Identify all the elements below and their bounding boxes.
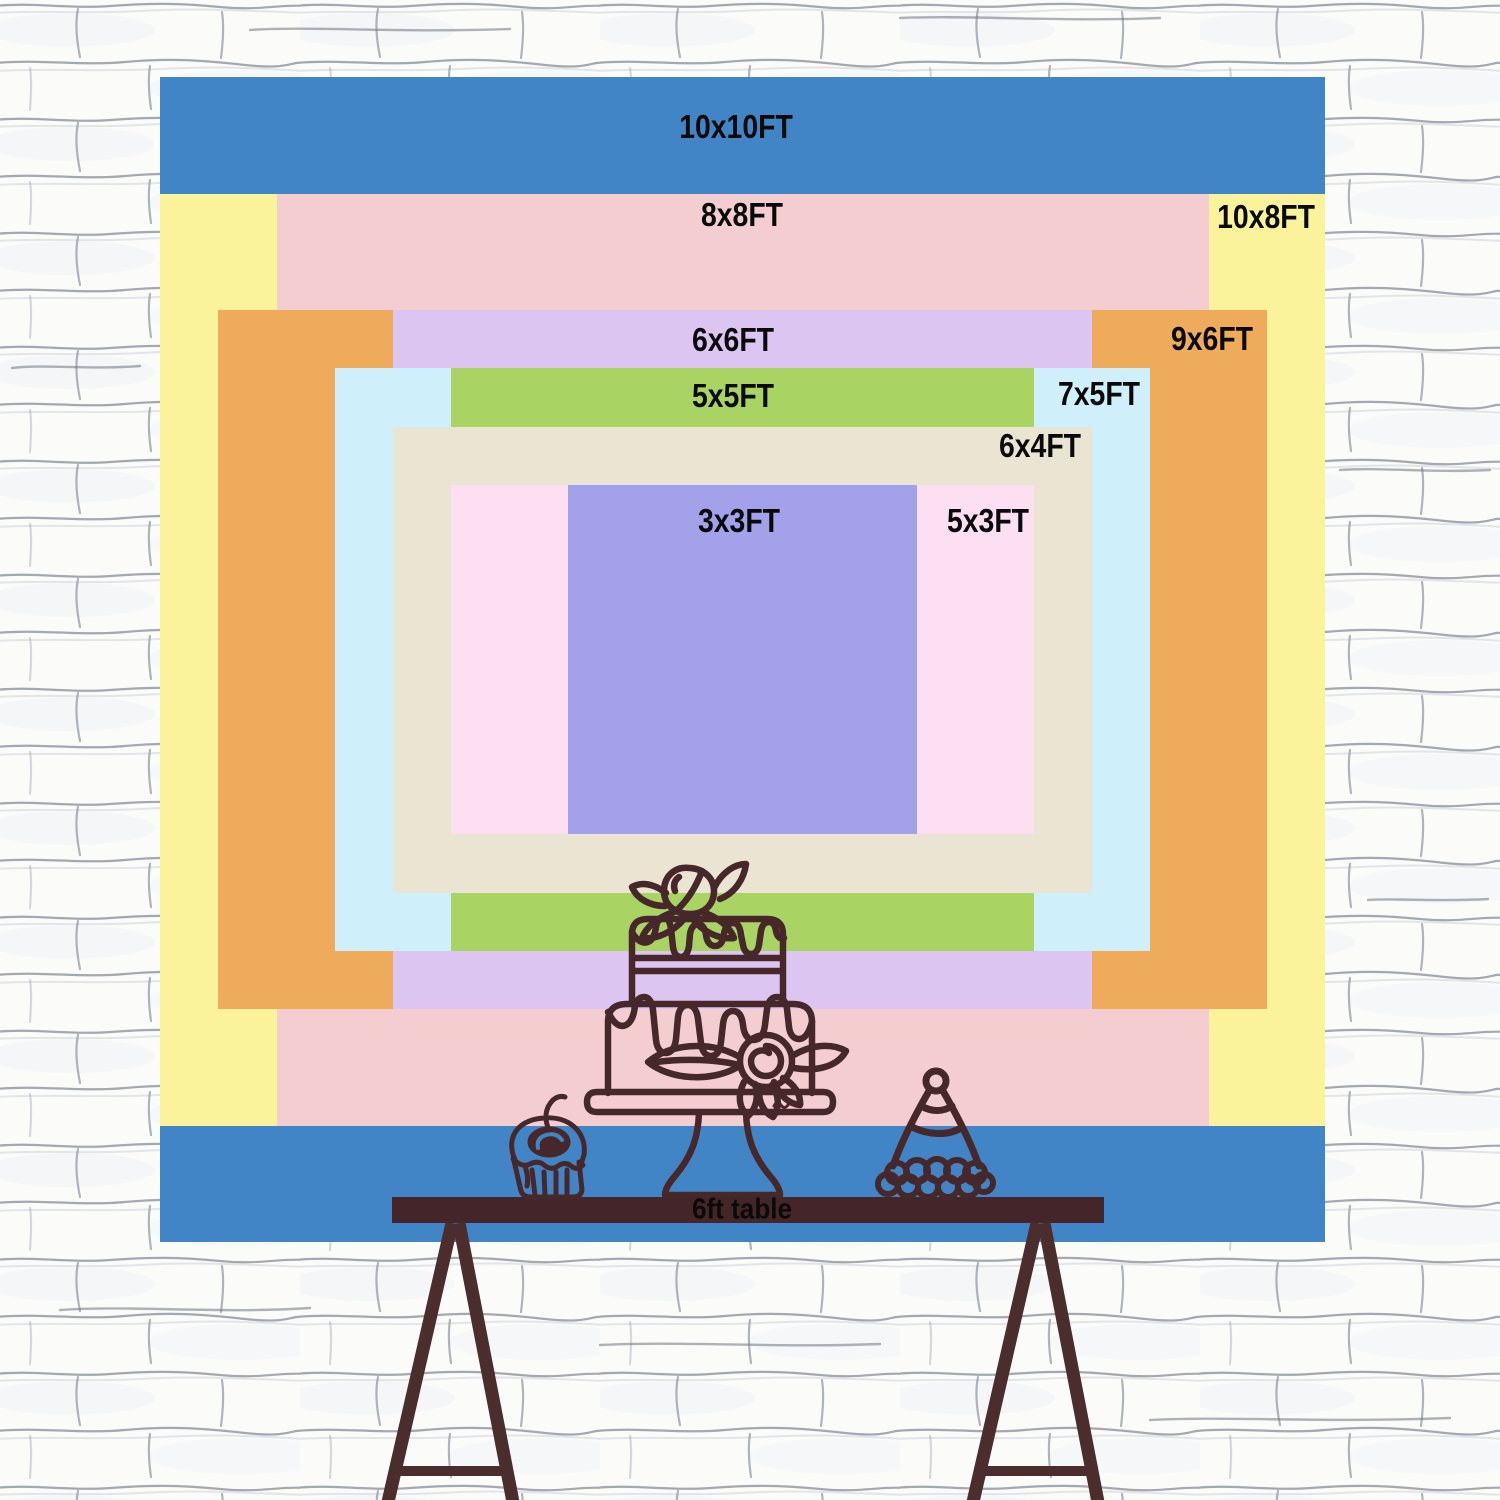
size-label-7x5ft: 7x5FT: [1058, 375, 1140, 413]
size-labels: 6ft table 10x10FT10x8FT8x8FT9x6FT6x6FT7x…: [0, 0, 1500, 1500]
size-label-9x6ft: 9x6FT: [1171, 320, 1253, 358]
size-label-10x10ft: 10x10FT: [679, 108, 793, 146]
size-label-5x5ft: 5x5FT: [692, 377, 774, 415]
size-label-8x8ft: 8x8FT: [701, 196, 783, 234]
size-label-6x4ft: 6x4FT: [999, 427, 1081, 465]
backdrop-size-chart-page: { "chart_data": { "type": "table", "titl…: [0, 0, 1500, 1500]
size-label-6x6ft: 6x6FT: [692, 321, 774, 359]
size-label-10x8ft: 10x8FT: [1217, 198, 1315, 236]
table-length-label: 6ft table: [692, 1194, 792, 1227]
size-label-3x3ft: 3x3FT: [698, 502, 780, 540]
size-label-5x3ft: 5x3FT: [947, 502, 1029, 540]
